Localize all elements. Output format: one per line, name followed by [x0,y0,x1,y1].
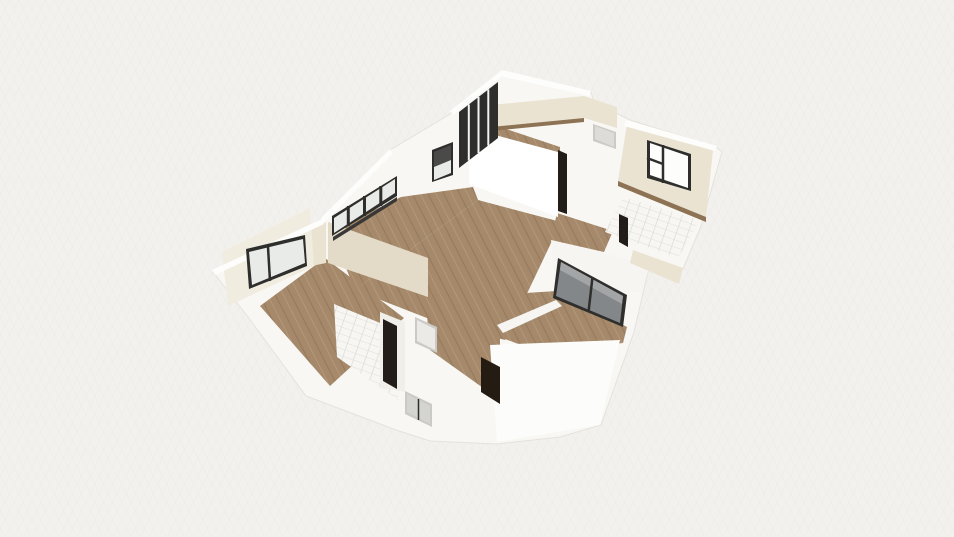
floor-plan-3d-canvas [0,0,954,537]
bathroom-right-door [619,214,628,247]
bathroom-left-door [383,319,397,389]
closet-door-frame [558,150,567,214]
floor-plan-viewport[interactable] [0,0,954,537]
